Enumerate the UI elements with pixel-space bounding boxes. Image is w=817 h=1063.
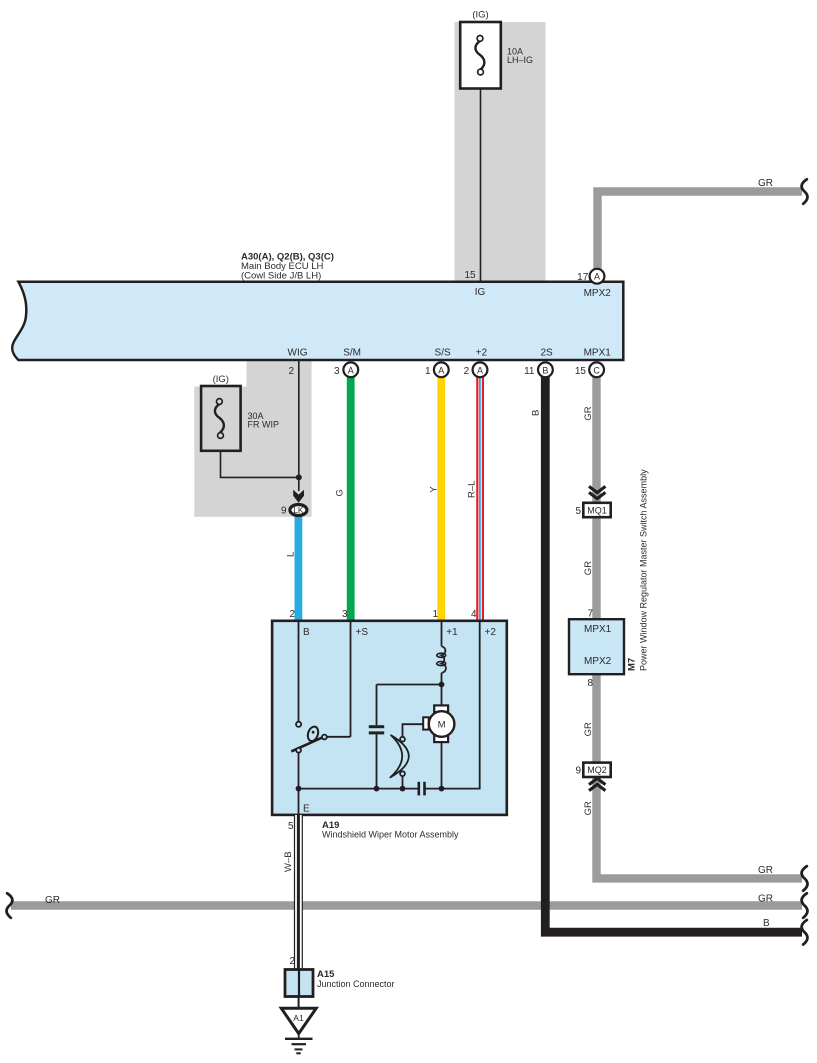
svg-text:Power Window Regulator Master: Power Window Regulator Master Switch Ass… xyxy=(638,469,648,671)
svg-text:S/M: S/M xyxy=(343,347,361,358)
svg-text:3: 3 xyxy=(342,609,348,620)
svg-text:GR: GR xyxy=(758,893,773,904)
svg-text:9: 9 xyxy=(281,505,287,516)
svg-text:GR: GR xyxy=(583,406,594,420)
svg-text:G: G xyxy=(335,489,346,496)
svg-text:(Cowl Side J/B LH): (Cowl Side J/B LH) xyxy=(241,271,321,282)
svg-text:5: 5 xyxy=(575,506,581,517)
svg-text:15: 15 xyxy=(464,270,476,281)
svg-text:LH–IG: LH–IG xyxy=(507,55,533,65)
svg-text:17: 17 xyxy=(577,272,589,283)
svg-text:M7: M7 xyxy=(627,658,638,671)
svg-text:5: 5 xyxy=(288,821,294,832)
svg-text:S/S: S/S xyxy=(435,347,451,358)
svg-text:Y: Y xyxy=(428,486,439,493)
svg-text:MQ2: MQ2 xyxy=(587,765,607,775)
svg-text:4: 4 xyxy=(471,609,477,620)
svg-text:A: A xyxy=(348,365,354,375)
svg-text:MPX2: MPX2 xyxy=(584,288,612,299)
svg-text:+1: +1 xyxy=(446,627,458,638)
svg-text:8: 8 xyxy=(587,678,593,689)
svg-text:2: 2 xyxy=(289,956,295,967)
svg-text:B: B xyxy=(303,627,310,638)
svg-text:A: A xyxy=(477,365,483,375)
svg-text:MPX1: MPX1 xyxy=(584,347,612,358)
svg-text:E: E xyxy=(303,804,310,815)
svg-text:2: 2 xyxy=(289,609,295,620)
svg-text:+S: +S xyxy=(356,627,369,638)
svg-text:A: A xyxy=(438,365,444,375)
svg-text:1: 1 xyxy=(432,609,438,620)
svg-text:GR: GR xyxy=(583,722,594,736)
svg-text:Windshield Wiper Motor Assembl: Windshield Wiper Motor Assembly xyxy=(322,830,459,840)
svg-text:2S: 2S xyxy=(540,347,553,358)
svg-text:A: A xyxy=(594,272,600,282)
svg-text:Junction Connector: Junction Connector xyxy=(317,979,395,989)
svg-text:GR: GR xyxy=(758,865,773,876)
svg-text:(IG): (IG) xyxy=(213,374,229,385)
svg-text:WIG: WIG xyxy=(288,347,308,358)
svg-text:GR: GR xyxy=(758,178,773,189)
svg-text:+2: +2 xyxy=(485,627,497,638)
svg-text:+2: +2 xyxy=(476,347,488,358)
svg-text:B: B xyxy=(531,410,542,416)
svg-text:MPX2: MPX2 xyxy=(584,656,612,667)
svg-text:2: 2 xyxy=(464,366,470,377)
svg-text:B: B xyxy=(542,365,548,375)
svg-text:GR: GR xyxy=(583,561,594,575)
svg-text:11: 11 xyxy=(524,366,535,377)
svg-text:GR: GR xyxy=(583,801,594,815)
svg-text:A1: A1 xyxy=(293,1013,304,1023)
svg-text:2: 2 xyxy=(288,366,294,377)
svg-text:3: 3 xyxy=(334,366,340,377)
svg-text:GR: GR xyxy=(45,895,60,906)
svg-text:15: 15 xyxy=(575,366,587,377)
svg-text:W–B: W–B xyxy=(283,851,294,872)
svg-text:LK: LK xyxy=(293,505,304,515)
svg-text:(IG): (IG) xyxy=(472,9,488,20)
svg-text:L: L xyxy=(285,552,296,557)
svg-text:IG: IG xyxy=(475,287,486,298)
svg-text:B: B xyxy=(763,918,770,929)
svg-text:FR WIP: FR WIP xyxy=(248,419,280,429)
svg-text:MQ1: MQ1 xyxy=(587,505,607,515)
svg-text:C: C xyxy=(593,365,600,375)
svg-text:MPX1: MPX1 xyxy=(584,624,612,635)
svg-text:R–L: R–L xyxy=(466,481,477,498)
svg-text:1: 1 xyxy=(425,366,431,377)
svg-text:9: 9 xyxy=(575,766,581,777)
svg-text:7: 7 xyxy=(587,609,593,620)
svg-text:M: M xyxy=(438,720,446,731)
